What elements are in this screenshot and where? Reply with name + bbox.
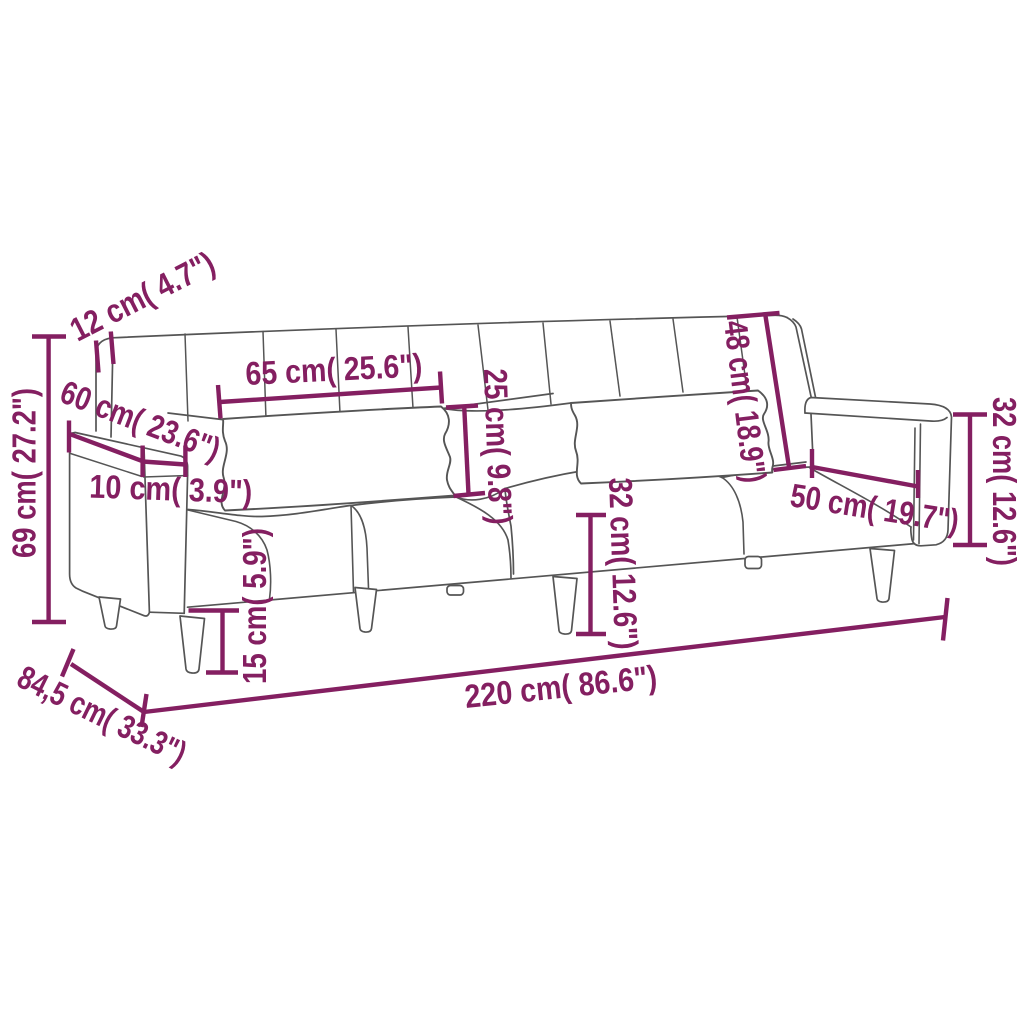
svg-text:10 cm( 3.9"): 10 cm( 3.9"): [89, 468, 253, 511]
svg-text:32 cm( 12.6"): 32 cm( 12.6"): [986, 397, 1023, 566]
svg-text:69 cm( 27.2"): 69 cm( 27.2"): [6, 388, 43, 558]
svg-text:15 cm( 5.9"): 15 cm( 5.9"): [236, 528, 273, 684]
svg-text:25 cm( 9.8"): 25 cm( 9.8"): [477, 368, 519, 525]
svg-text:32 cm( 12.6"): 32 cm( 12.6"): [602, 477, 645, 650]
